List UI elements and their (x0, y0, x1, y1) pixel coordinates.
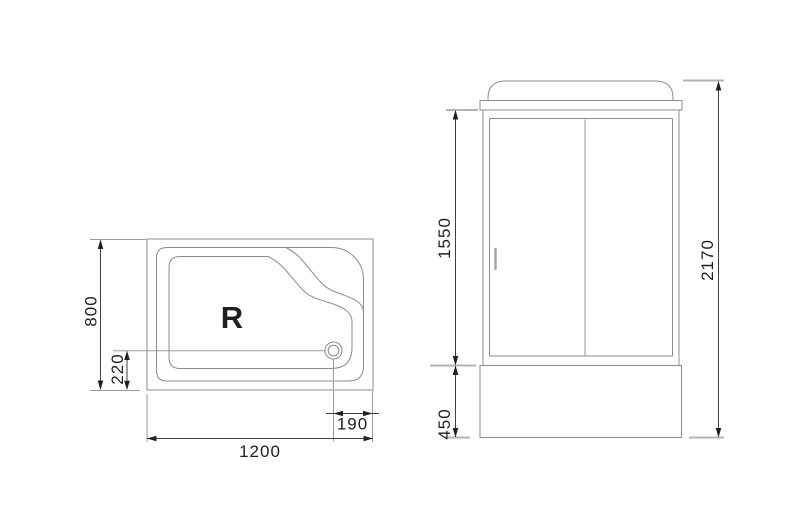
dim-label-depth: 800 (82, 295, 101, 326)
arrowhead (716, 81, 722, 91)
top-bar (480, 101, 682, 111)
arrowhead (98, 240, 104, 250)
tray-rim-outline (157, 247, 364, 381)
dim-label-drain-right: 190 (337, 415, 368, 434)
tray-floor-outline (169, 257, 352, 369)
dim-label-tray-height: 450 (435, 408, 454, 439)
dim-label-total-height: 2170 (698, 239, 717, 281)
arrowhead (364, 436, 374, 442)
arrowhead (147, 436, 157, 442)
front-view-dimensions: 1550 450 2170 (430, 81, 724, 440)
plan-view: R (147, 239, 373, 390)
arrowhead (716, 428, 722, 438)
arrowhead (453, 356, 459, 366)
dim-label-drain-bottom: 220 (108, 353, 127, 384)
tray-apron (480, 366, 682, 438)
dim-label-width: 1200 (239, 442, 281, 461)
dim-label-door-height: 1550 (435, 217, 454, 259)
drain-inner-circle (328, 345, 339, 356)
arrowhead (98, 381, 104, 391)
arrowhead (453, 366, 459, 376)
orientation-label: R (221, 300, 243, 335)
shower-cabin-dimension-drawing: R 800 220 1200 190 (0, 0, 790, 526)
roof-dome (488, 81, 673, 101)
arrowhead (453, 110, 459, 120)
front-view (480, 81, 682, 438)
tray-seat-curve (286, 248, 364, 314)
